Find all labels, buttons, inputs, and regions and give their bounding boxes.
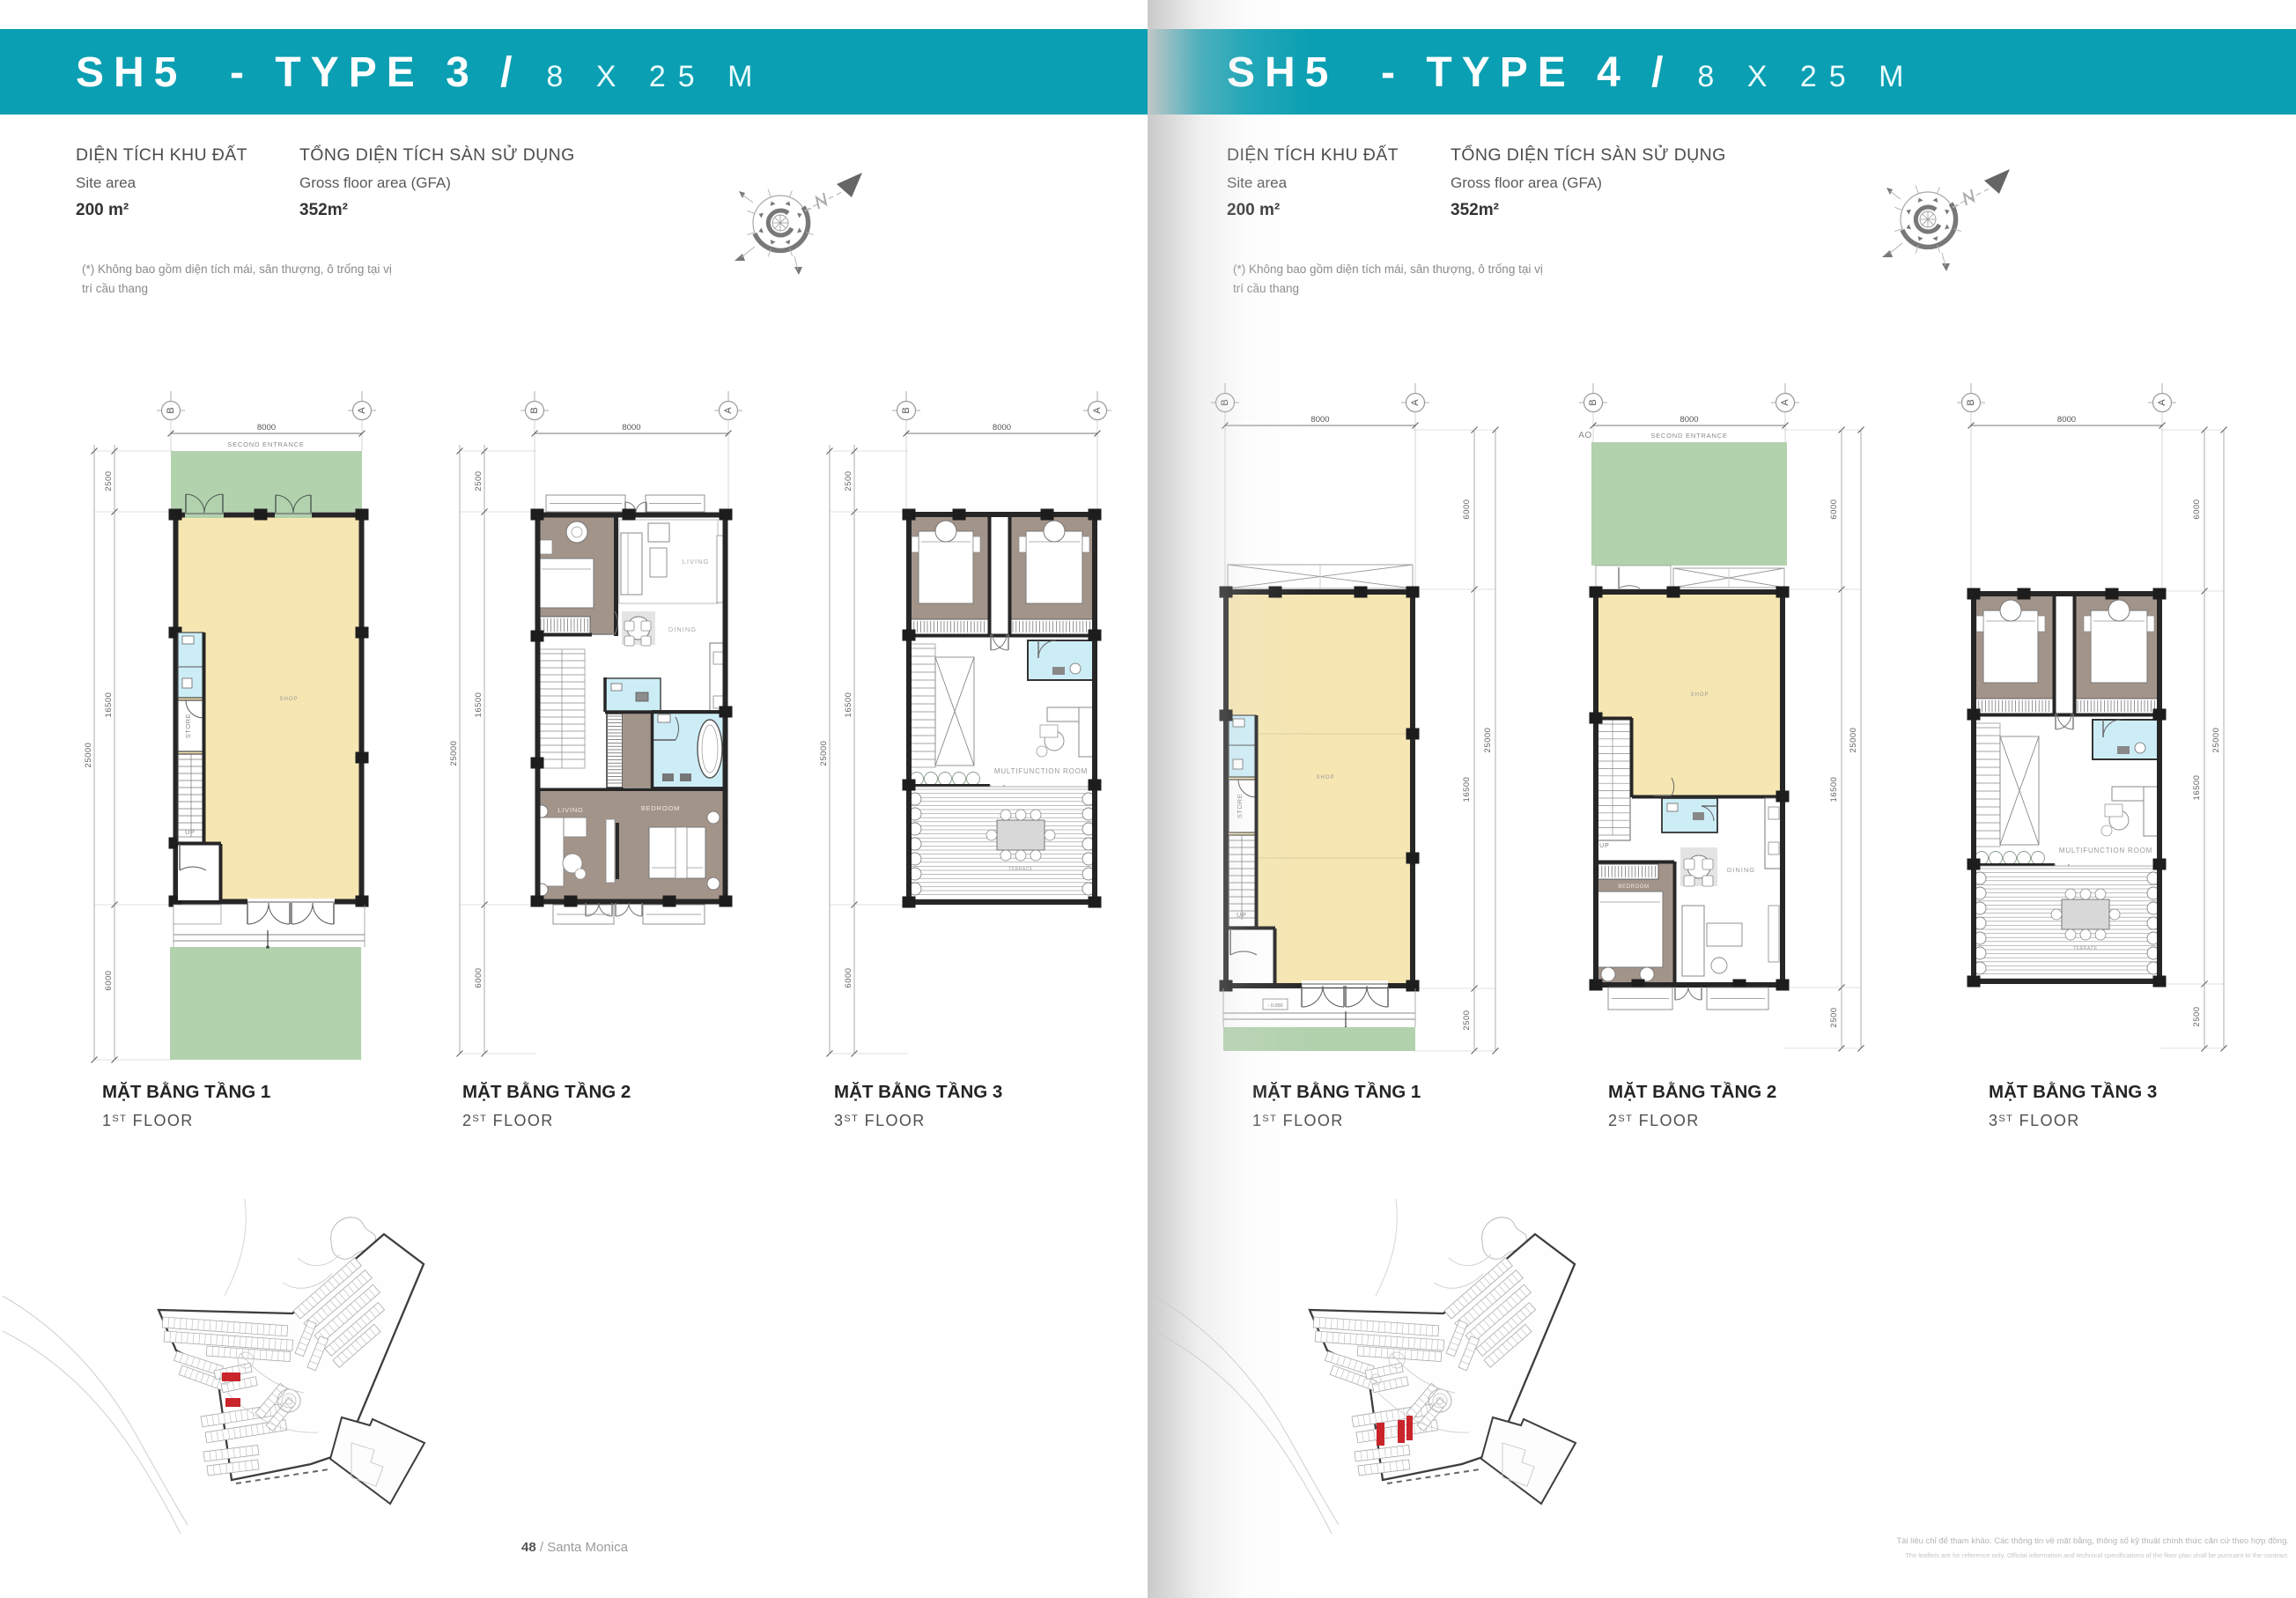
svg-text:SHOP: SHOP	[1690, 692, 1709, 698]
svg-text:LIVING: LIVING	[557, 806, 583, 814]
svg-text:DINING: DINING	[1727, 866, 1755, 874]
svg-text:AO: AO	[1578, 431, 1591, 440]
svg-text:B: B	[166, 407, 176, 413]
svg-text:SECOND ENTRANCE: SECOND ENTRANCE	[227, 440, 304, 448]
svg-text:25000: 25000	[449, 741, 459, 766]
svg-text:A: A	[1780, 399, 1790, 406]
svg-text:DINING: DINING	[668, 625, 697, 633]
svg-text:A: A	[2157, 399, 2167, 406]
svg-text:2500: 2500	[1829, 1007, 1839, 1027]
svg-text:TERRACE: TERRACE	[2073, 946, 2098, 951]
svg-text:8000: 8000	[1680, 415, 1698, 425]
svg-text:UP: UP	[185, 830, 196, 836]
svg-text:SECOND ENTRANCE: SECOND ENTRANCE	[1650, 432, 1727, 440]
svg-text:25000: 25000	[819, 741, 829, 766]
svg-text:A: A	[357, 407, 367, 414]
svg-text:6000: 6000	[104, 970, 114, 990]
svg-text:25000: 25000	[1483, 728, 1493, 753]
svg-text:B: B	[1588, 399, 1598, 405]
svg-text:16500: 16500	[104, 692, 114, 718]
svg-text:2500: 2500	[104, 470, 114, 491]
svg-text:6000: 6000	[844, 967, 853, 988]
svg-text:6000: 6000	[1829, 499, 1839, 519]
svg-text:2500: 2500	[844, 470, 853, 491]
svg-text:STORE: STORE	[184, 714, 192, 738]
svg-text:B: B	[901, 407, 912, 413]
svg-text:MULTIFUNCTION ROOM: MULTIFUNCTION ROOM	[2059, 847, 2152, 854]
svg-text:2500: 2500	[1462, 1010, 1472, 1030]
svg-text:8000: 8000	[622, 423, 640, 433]
svg-text:8000: 8000	[1310, 415, 1329, 425]
svg-text:25000: 25000	[2211, 728, 2221, 753]
svg-text:LIVING: LIVING	[683, 558, 710, 566]
svg-text:B: B	[1966, 399, 1976, 405]
svg-text:8000: 8000	[2057, 415, 2076, 425]
svg-text:16500: 16500	[2192, 775, 2202, 801]
svg-text:16500: 16500	[474, 692, 484, 718]
svg-text:25000: 25000	[1849, 728, 1858, 753]
svg-text:A: A	[1410, 399, 1421, 406]
svg-text:6000: 6000	[474, 967, 484, 988]
svg-text:SHOP: SHOP	[279, 697, 298, 702]
svg-text:16500: 16500	[844, 692, 853, 718]
svg-text:16500: 16500	[1462, 777, 1472, 803]
svg-text:16500: 16500	[1829, 777, 1839, 803]
svg-text:A: A	[723, 407, 734, 414]
svg-text:A: A	[1092, 407, 1103, 414]
svg-text:SHOP: SHOP	[1316, 775, 1334, 781]
svg-text:25000: 25000	[84, 743, 93, 768]
svg-text:BEDROOM: BEDROOM	[1618, 884, 1649, 890]
svg-text:6000: 6000	[2192, 499, 2202, 519]
svg-text:8000: 8000	[993, 423, 1011, 433]
svg-text:2500: 2500	[2192, 1006, 2202, 1026]
svg-text:BEDROOM: BEDROOM	[641, 804, 680, 812]
svg-text:MULTIFUNCTION ROOM: MULTIFUNCTION ROOM	[994, 767, 1088, 775]
svg-text:B: B	[529, 407, 540, 413]
svg-text:6000: 6000	[1462, 499, 1472, 519]
svg-text:2500: 2500	[474, 470, 484, 491]
svg-text:8000: 8000	[257, 423, 276, 433]
svg-text:TERRACE: TERRACE	[1008, 867, 1033, 872]
svg-text:UP: UP	[1599, 843, 1610, 849]
